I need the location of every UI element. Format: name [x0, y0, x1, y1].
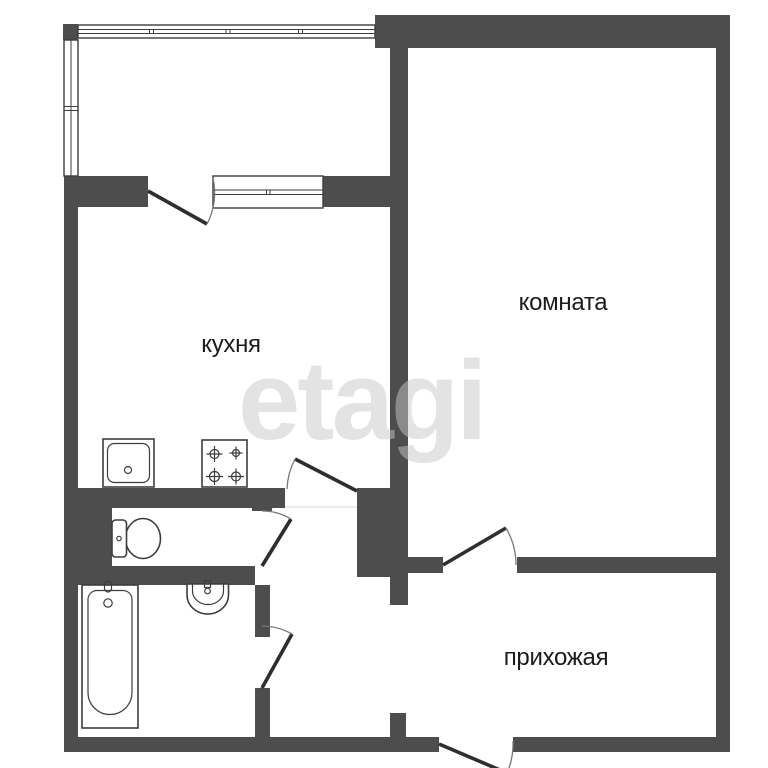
wall-right: [716, 15, 730, 752]
wall-room-bottom-left: [408, 557, 443, 573]
balcony-window-top: [78, 25, 375, 38]
watermark: etagi: [238, 345, 484, 457]
wall-bottom-left: [64, 737, 439, 752]
door-swing-arc: [506, 528, 516, 565]
wall-kitchen-top-left: [64, 176, 148, 207]
door-swing-arc: [509, 741, 513, 768]
kitchen-sink-icon: [103, 439, 154, 487]
kitchen-window-sill: [213, 176, 323, 208]
wall-bathroom-right-stub: [255, 688, 270, 737]
entrance-door: [439, 741, 513, 768]
door-swing-arc: [287, 459, 295, 489]
balcony-corner-post: [63, 24, 78, 40]
door-leaf: [148, 191, 207, 224]
wc-door: [262, 511, 291, 566]
door-swing-arc: [262, 511, 291, 519]
wall-left: [64, 176, 78, 752]
washbasin-icon: [187, 581, 229, 615]
door-leaf: [443, 528, 506, 565]
wall-room-top: [375, 15, 730, 48]
wc-door-jamb: [252, 505, 272, 511]
wall-room-bottom-right: [517, 557, 730, 573]
wall-bathroom-right-upper: [255, 585, 270, 637]
hallway-label: прихожая: [496, 644, 616, 672]
wc-duct-block: [78, 508, 112, 566]
wall-wc-bottom: [64, 566, 255, 585]
window-sill-icon: [213, 176, 323, 208]
entrance-door-jamb: [390, 713, 406, 739]
balcony-door: [148, 178, 215, 224]
wall-kitchen-top-right: [322, 176, 390, 207]
door-leaf: [295, 459, 357, 491]
kitchen-label: кухня: [181, 331, 281, 359]
kitchen-door: [285, 459, 357, 507]
floor-plan: etagi кухня комната прихожая: [0, 0, 768, 768]
living-room-door: [443, 528, 516, 565]
living-room-label: комната: [513, 289, 613, 317]
wall-bottom-right: [513, 737, 730, 752]
door-leaf: [262, 634, 292, 688]
wall-kitchen-bottom: [64, 488, 285, 508]
bathtub-icon: [82, 581, 138, 728]
door-leaf: [262, 519, 291, 566]
balcony-window-left: [64, 40, 78, 176]
door-leaf: [439, 744, 507, 768]
wall-central-block: [357, 488, 408, 577]
toilet-icon: [112, 519, 161, 559]
